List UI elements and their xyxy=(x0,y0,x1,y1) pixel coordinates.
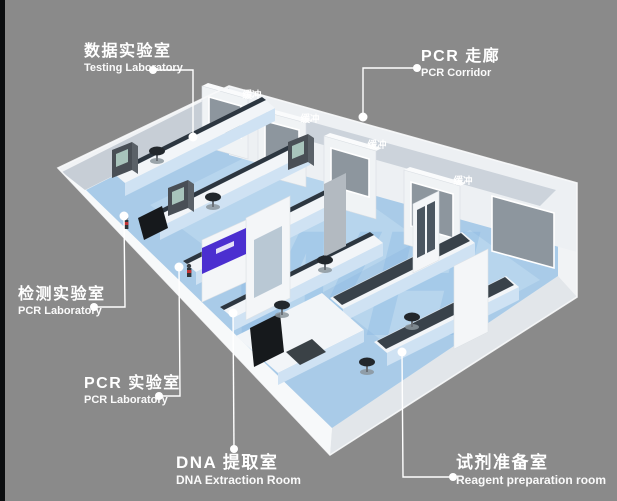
label-testing-laboratory-zh: 数据实验室 xyxy=(84,42,183,62)
buffer-label-3: 缓冲 xyxy=(367,139,387,151)
label-dna-extraction-room-zh: DNA 提取室 xyxy=(176,452,301,473)
label-reagent-preparation-room-zh: 试剂准备室 xyxy=(456,452,606,473)
lab-fridge xyxy=(324,173,346,257)
label-reagent-preparation-room: 试剂准备室 Reagent preparation room xyxy=(456,452,606,488)
label-testing-laboratory: 数据实验室 Testing Laboratory xyxy=(84,42,183,76)
buffer-label-4: 缓冲 xyxy=(453,175,473,187)
label-pcr-corridor-en: PCR Corridor xyxy=(421,67,500,81)
leader-pcr-corridor xyxy=(359,64,422,122)
label-pcr-laboratory: PCR 实验室 PCR Laboratory xyxy=(84,374,181,408)
label-reagent-preparation-room-en: Reagent preparation room xyxy=(456,473,606,488)
label-pcr-laboratory-en: PCR Laboratory xyxy=(84,394,181,408)
label-detection-laboratory-en: PCR Laboratory xyxy=(18,305,106,319)
label-detection-laboratory: 检测实验室 PCR Laboratory xyxy=(18,285,106,319)
label-detection-laboratory-zh: 检测实验室 xyxy=(18,285,106,305)
label-dna-extraction-room: DNA 提取室 DNA Extraction Room xyxy=(176,452,301,488)
person-figure xyxy=(187,264,192,277)
glass-cabinet xyxy=(413,191,439,273)
label-pcr-laboratory-zh: PCR 实验室 xyxy=(84,374,181,394)
label-pcr-corridor-zh: PCR 走廊 xyxy=(421,47,500,67)
buffer-label-2: 缓冲 xyxy=(300,113,320,125)
buffer-label-1: 缓冲 xyxy=(242,89,262,101)
white-pillar xyxy=(454,249,488,349)
label-pcr-corridor: PCR 走廊 PCR Corridor xyxy=(421,47,500,81)
lab-floorplan-render: WH xyxy=(0,0,617,501)
label-dna-extraction-room-en: DNA Extraction Room xyxy=(176,473,301,488)
label-testing-laboratory-en: Testing Laboratory xyxy=(84,62,183,76)
